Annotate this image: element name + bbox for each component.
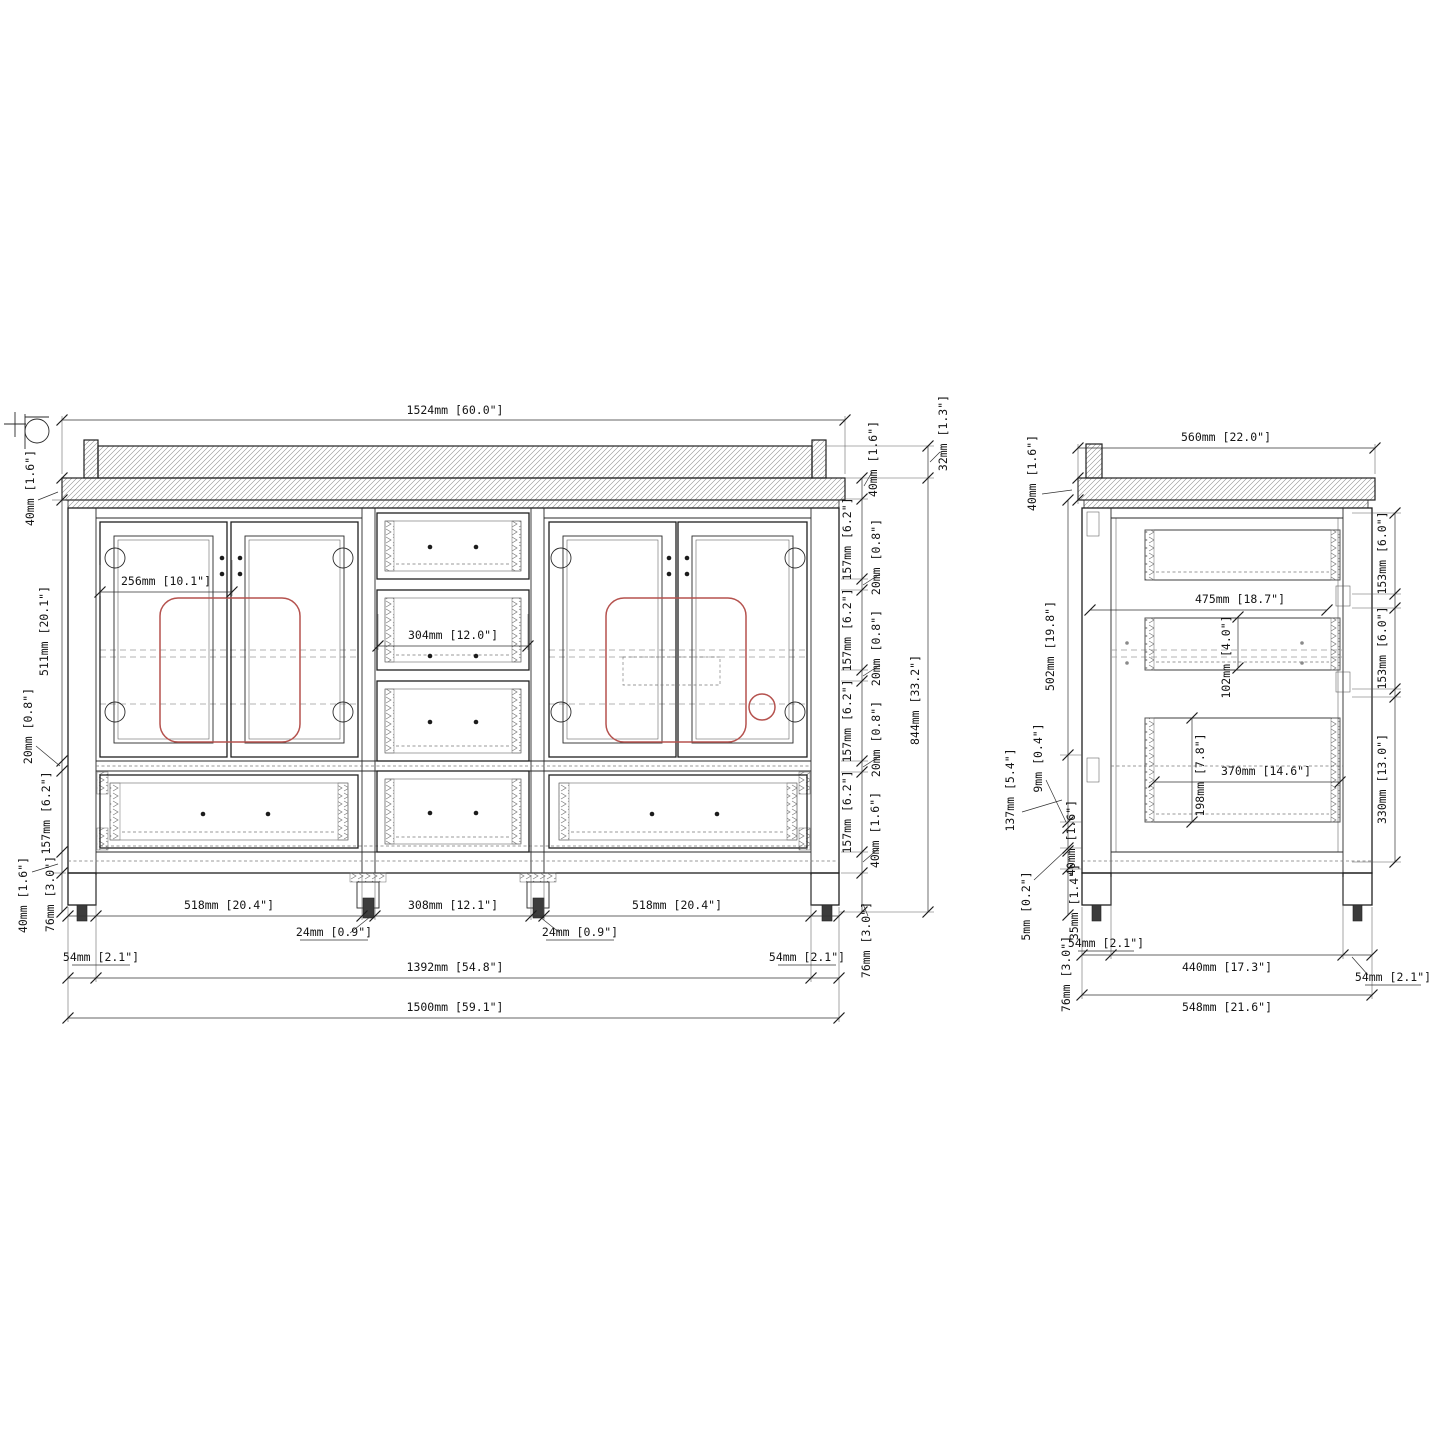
dim-side-9: 9mm [0.4"]: [1031, 723, 1045, 792]
front-cabinet-frame: [68, 508, 839, 873]
dim-front-r157-2: 157mm [6.2"]: [840, 588, 854, 671]
dimension-ticks: [1063, 443, 1401, 1001]
dim-side-330: 330mm [13.0"]: [1375, 734, 1389, 824]
front-bottom-drawer-right: [549, 775, 807, 848]
dim-side-198: 198mm [7.8"]: [1193, 733, 1207, 816]
dim-side-137: 137mm [5.4"]: [1003, 748, 1017, 831]
dim-front-r157-3: 157mm [6.2"]: [840, 679, 854, 762]
dim-front-r20-1: 20mm [0.8"]: [869, 519, 883, 595]
dim-front-1500: 1500mm [59.1"]: [407, 1000, 504, 1014]
faucet-hole-icon: [749, 694, 775, 720]
dim-side-153-2: 153mm [6.0"]: [1375, 606, 1389, 689]
dim-front-hinge: 256mm [10.1"]: [121, 574, 211, 588]
front-bottom-drawer-left: [100, 775, 358, 848]
dim-front-54-right: 54mm [2.1"]: [769, 950, 845, 964]
corner-reference-mark: [4, 412, 49, 449]
front-backsplash: [84, 440, 826, 478]
side-legs-feet: [1082, 873, 1372, 921]
dim-front-r157-1: 157mm [6.2"]: [840, 497, 854, 580]
dim-side-54-right: 54mm [2.1"]: [1355, 970, 1431, 984]
dim-side-440: 440mm [17.3"]: [1182, 960, 1272, 974]
side-view: 560mm [22.0"] 40mm [1.6"] 502mm [19.8"] …: [1003, 430, 1431, 1014]
dim-side-475: 475mm [18.7"]: [1195, 592, 1285, 606]
front-center-drawer-stack: [377, 513, 529, 852]
dim-side-102: 102mm [4.0"]: [1219, 615, 1233, 698]
dim-side-counter: 40mm [1.6"]: [1025, 435, 1039, 511]
sink-cutout-right: [606, 598, 775, 742]
front-right-door-pair: [549, 522, 807, 757]
center-foot-right: [520, 873, 556, 918]
dim-front-door-height: 511mm [20.1"]: [37, 586, 51, 676]
front-left-door-pair: [100, 522, 358, 757]
side-backsplash: [1086, 444, 1102, 478]
dim-front-right-40-top: 40mm [1.6"]: [866, 421, 880, 497]
front-shelf-lines: [68, 650, 839, 861]
dim-front-r20-2: 20mm [0.8"]: [869, 610, 883, 686]
dim-front-308: 308mm [12.1"]: [408, 898, 498, 912]
dim-front-mid-drawer: 304mm [12.0"]: [408, 628, 498, 642]
dim-front-r76-bottom: 76mm [3.0"]: [859, 902, 873, 978]
dim-side-153-1: 153mm [6.0"]: [1375, 511, 1389, 594]
dim-side-54-left: 54mm [2.1"]: [1068, 936, 1144, 950]
dim-front-gap-left: 20mm [0.8"]: [21, 688, 35, 764]
dim-front-518-right: 518mm [20.4"]: [632, 898, 722, 912]
dim-front-r20-3: 20mm [0.8"]: [869, 701, 883, 777]
drawer-front-1: [377, 513, 529, 579]
dim-front-right-32: 32mm [1.3"]: [936, 395, 950, 471]
dim-side-548: 548mm [21.6"]: [1182, 1000, 1272, 1014]
dim-front-24-left: 24mm [0.9"]: [296, 925, 372, 939]
dim-side-35: 35mm [1.4"]: [1067, 864, 1081, 940]
dimension-lines: [32, 420, 940, 1018]
front-countertop: [62, 478, 845, 508]
dim-front-rail-left: 40mm [1.6"]: [16, 857, 30, 933]
dim-front-leg-left: 76mm [3.0"]: [43, 856, 57, 932]
dim-side-370: 370mm [14.6"]: [1221, 764, 1311, 778]
side-countertop: [1078, 478, 1375, 508]
drawer-front-4: [377, 771, 529, 852]
dim-front-24-right: 24mm [0.9"]: [542, 925, 618, 939]
dim-front-518-left: 518mm [20.4"]: [184, 898, 274, 912]
dim-side-top-depth: 560mm [22.0"]: [1181, 430, 1271, 444]
dim-front-r157-4: 157mm [6.2"]: [840, 770, 854, 853]
dim-front-1392: 1392mm [54.8"]: [407, 960, 504, 974]
dim-front-total-height: 844mm [33.2"]: [908, 655, 922, 745]
side-drawer-box-1: [1145, 530, 1340, 580]
sink-cutout-left: [160, 598, 300, 742]
dim-side-502: 502mm [19.8"]: [1043, 601, 1057, 691]
front-legs-feet: [68, 873, 839, 921]
center-foot-left: [350, 873, 386, 918]
front-view: 1524mm [60.0"] 40mm [1.6"] 511mm [20.1"]…: [16, 395, 950, 1024]
dim-front-drawer-left: 157mm [6.2"]: [39, 771, 53, 854]
dim-side-5: 5mm [0.2"]: [1019, 871, 1033, 940]
dim-front-r40-bottom: 40mm [1.6"]: [868, 792, 882, 868]
dim-front-top-width: 1524mm [60.0"]: [407, 403, 504, 417]
technical-drawing-canvas: 1524mm [60.0"] 40mm [1.6"] 511mm [20.1"]…: [0, 0, 1445, 1445]
drawer-front-3: [377, 681, 529, 761]
dim-front-54-left: 54mm [2.1"]: [63, 950, 139, 964]
dim-front-counter-left: 40mm [1.6"]: [23, 450, 37, 526]
